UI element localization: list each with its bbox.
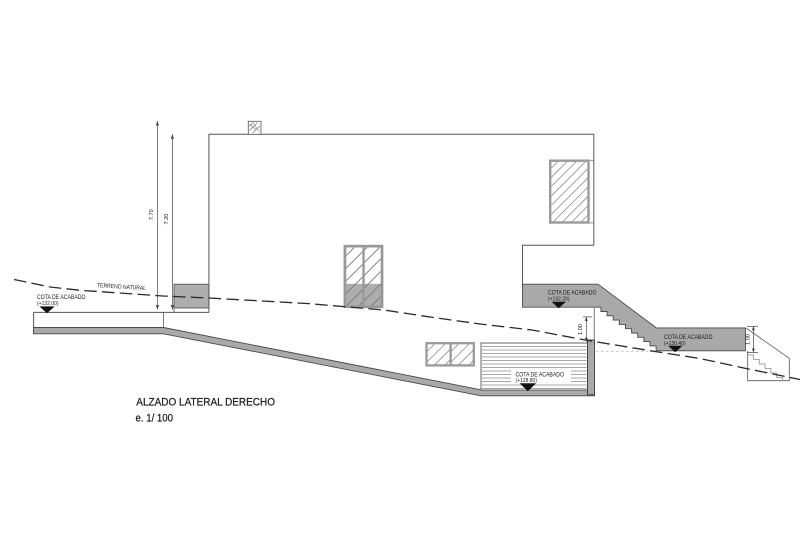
svg-text:ALZADO LATERAL DERECHO: ALZADO LATERAL DERECHO <box>136 396 275 408</box>
svg-text:7.70: 7.70 <box>149 209 155 220</box>
svg-text:1.00: 1.00 <box>578 324 584 335</box>
svg-text:(+132.00): (+132.00) <box>37 301 59 307</box>
svg-text:e. 1/ 100: e. 1/ 100 <box>136 413 174 425</box>
svg-text:1.00: 1.00 <box>746 334 752 345</box>
svg-text:(+128.80): (+128.80) <box>516 378 538 384</box>
svg-text:7.20: 7.20 <box>164 214 170 225</box>
svg-text:(+132.20): (+132.20) <box>548 296 570 302</box>
